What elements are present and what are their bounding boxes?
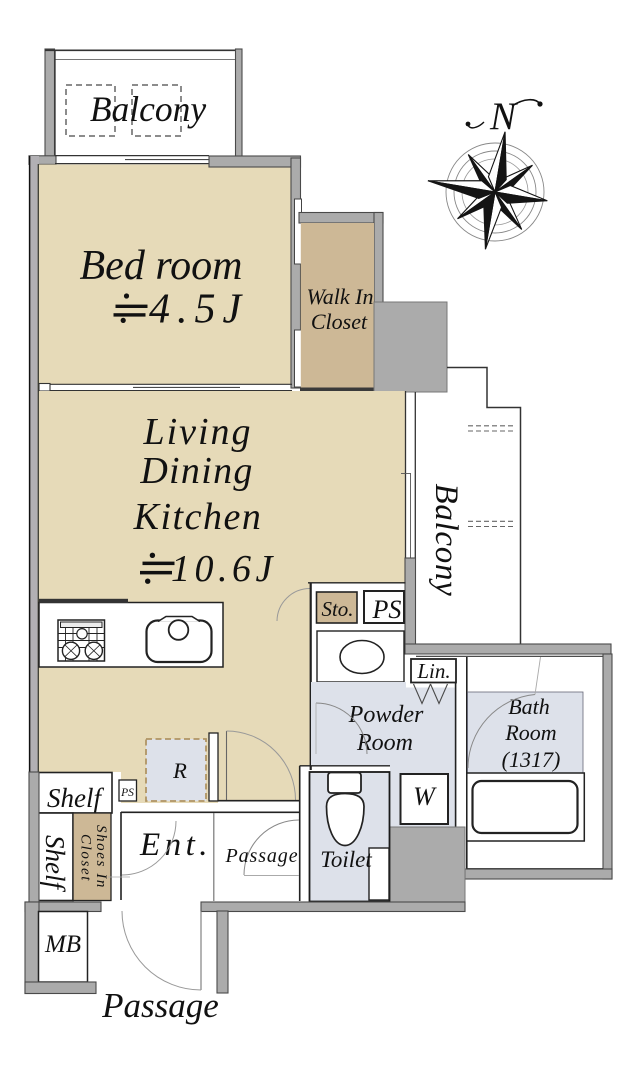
svg-text:(1317): (1317): [502, 747, 561, 772]
svg-text:Shelf: Shelf: [40, 835, 70, 892]
svg-text:Room: Room: [356, 730, 413, 756]
svg-text:Lin.: Lin.: [416, 659, 450, 683]
svg-text:Balcony: Balcony: [90, 89, 207, 129]
svg-text:R: R: [172, 758, 187, 783]
svg-text:Shoes In: Shoes In: [93, 825, 109, 889]
svg-text:Dining: Dining: [139, 450, 253, 492]
svg-text:Bath: Bath: [508, 694, 550, 719]
svg-text:Walk In: Walk In: [306, 284, 373, 309]
svg-text:PS: PS: [120, 787, 134, 799]
svg-text:10.6J: 10.6J: [171, 548, 277, 590]
svg-text:Bed room: Bed room: [80, 243, 243, 289]
svg-text:MB: MB: [44, 931, 81, 958]
svg-text:Passage: Passage: [225, 845, 299, 867]
svg-text:Shelf: Shelf: [47, 783, 104, 813]
svg-text:Room: Room: [504, 720, 556, 745]
svg-text:W: W: [413, 782, 437, 811]
svg-text:Passage: Passage: [101, 986, 219, 1025]
svg-text:Powder: Powder: [348, 702, 424, 728]
svg-text:Kitchen: Kitchen: [133, 496, 263, 538]
svg-text:Ent.: Ent.: [139, 827, 212, 863]
svg-text:Living: Living: [142, 411, 252, 453]
svg-text:Toilet: Toilet: [320, 847, 372, 872]
svg-text:Closet: Closet: [78, 834, 94, 882]
svg-text:4.5J: 4.5J: [149, 287, 248, 333]
svg-text:Sto.: Sto.: [321, 597, 353, 621]
svg-text:N: N: [489, 95, 518, 138]
svg-text:Closet: Closet: [311, 309, 368, 334]
svg-text:Balcony: Balcony: [428, 483, 464, 596]
svg-text:PS: PS: [372, 595, 402, 624]
